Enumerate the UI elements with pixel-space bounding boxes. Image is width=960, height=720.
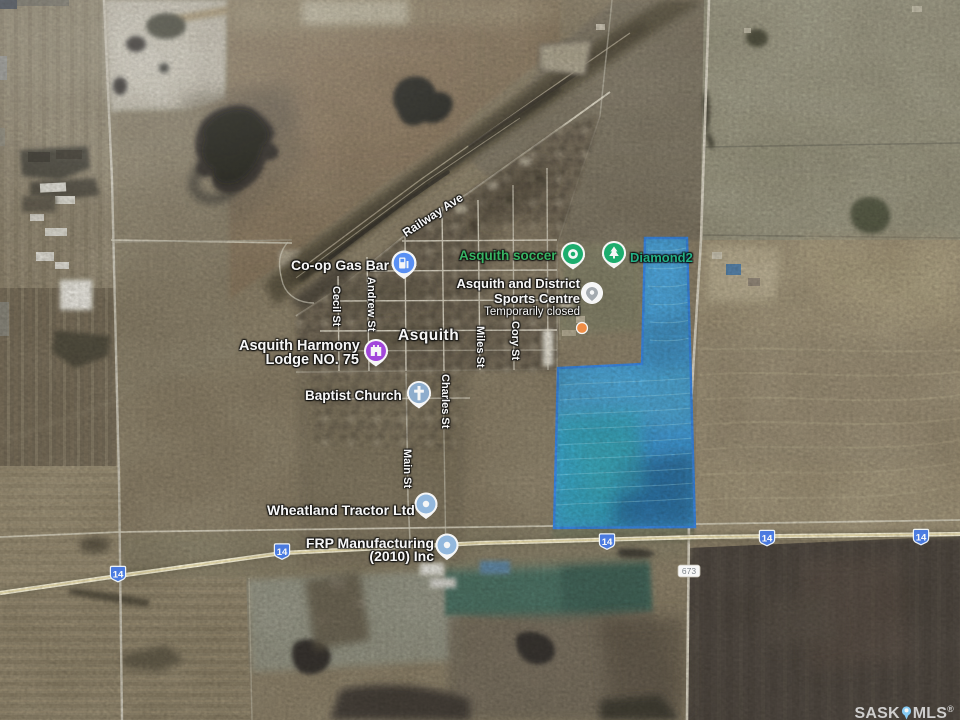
svg-text:14: 14 [113,569,124,580]
svg-text:673: 673 [682,566,696,576]
